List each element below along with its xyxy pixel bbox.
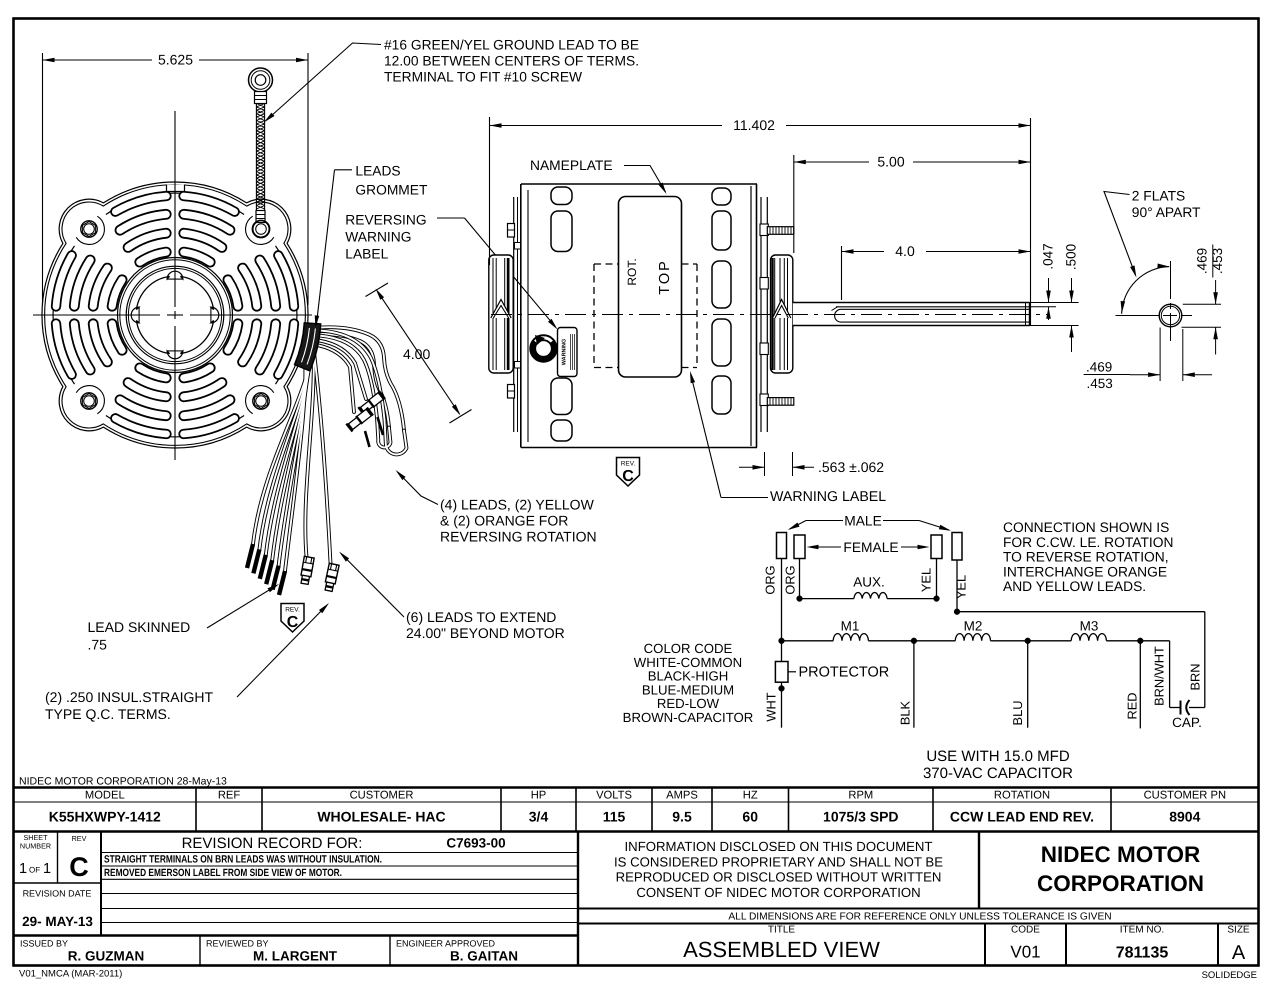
svg-text:TOP: TOP	[657, 259, 673, 295]
svg-text:INFORMATION DISCLOSED ON THIS: INFORMATION DISCLOSED ON THIS DOCUMENT	[625, 839, 933, 854]
svg-text:24.00" BEYOND MOTOR: 24.00" BEYOND MOTOR	[406, 625, 565, 641]
svg-text:WARNING: WARNING	[345, 230, 411, 245]
svg-text:ENGINEER APPROVED: ENGINEER APPROVED	[396, 939, 496, 949]
svg-text:HZ: HZ	[743, 790, 758, 802]
svg-text:REVISION RECORD FOR:: REVISION RECORD FOR:	[182, 835, 363, 852]
svg-text:REV: REV	[72, 834, 87, 843]
svg-text:CCW LEAD END REV.: CCW LEAD END REV.	[950, 809, 1094, 825]
svg-text:LEAD SKINNED: LEAD SKINNED	[88, 619, 191, 635]
svg-text:WARNING: WARNING	[562, 339, 568, 366]
svg-text:TYPE Q.C. TERMS.: TYPE Q.C. TERMS.	[45, 706, 171, 722]
svg-text:ALL DIMENSIONS ARE FOR REFEREN: ALL DIMENSIONS ARE FOR REFERENCE ONLY UN…	[728, 912, 1111, 923]
svg-text:.047: .047	[1041, 243, 1056, 269]
svg-text:REVIEWED BY: REVIEWED BY	[206, 939, 269, 949]
svg-text:.563 ±.062: .563 ±.062	[818, 459, 884, 475]
svg-text:CODE: CODE	[1011, 925, 1040, 936]
svg-text:C: C	[69, 852, 89, 882]
svg-text:R. GUZMAN: R. GUZMAN	[68, 949, 145, 964]
svg-text:M. LARGENT: M. LARGENT	[253, 949, 338, 964]
svg-text:29- MAY-13: 29- MAY-13	[22, 914, 93, 929]
svg-text:(4) LEADS, (2) YELLOW: (4) LEADS, (2) YELLOW	[440, 497, 595, 513]
svg-text:RPM: RPM	[848, 790, 873, 802]
svg-text:LEADS: LEADS	[355, 164, 400, 179]
svg-text:.75: .75	[88, 637, 108, 653]
svg-text:OF: OF	[29, 866, 40, 875]
svg-text:CAP.: CAP.	[1172, 715, 1202, 730]
svg-text:5.00: 5.00	[877, 154, 904, 170]
svg-text:ROT.: ROT.	[625, 258, 639, 285]
svg-text:11.402: 11.402	[733, 117, 775, 133]
svg-text:C: C	[622, 468, 634, 485]
svg-text:REVERSING ROTATION: REVERSING ROTATION	[440, 529, 597, 545]
svg-text:AUX.: AUX.	[853, 575, 885, 590]
svg-text:115: 115	[603, 809, 626, 825]
svg-text:.453: .453	[1087, 376, 1113, 391]
svg-text:60: 60	[742, 809, 758, 825]
svg-text:12.00 BETWEEN CENTERS OF TERMS: 12.00 BETWEEN CENTERS OF TERMS.	[384, 54, 639, 69]
svg-text:RED: RED	[1125, 692, 1140, 719]
svg-text:AMPS: AMPS	[666, 790, 698, 802]
svg-text:YEL: YEL	[954, 575, 969, 599]
svg-text:ROTATION: ROTATION	[994, 790, 1050, 802]
svg-text:.469: .469	[1086, 360, 1112, 375]
svg-text:NAMEPLATE: NAMEPLATE	[530, 158, 613, 173]
svg-text:NIDEC MOTOR CORPORATION 28-May: NIDEC MOTOR CORPORATION 28-May-13	[19, 776, 227, 788]
svg-text:USE WITH 15.0 MFD: USE WITH 15.0 MFD	[926, 748, 1070, 765]
svg-text:C: C	[287, 614, 299, 631]
svg-text:BLK: BLK	[898, 700, 913, 725]
svg-text:TITLE: TITLE	[768, 925, 796, 936]
svg-text:SIZE: SIZE	[1227, 925, 1250, 936]
svg-text:AND YELLOW LEADS.: AND YELLOW LEADS.	[1003, 579, 1146, 594]
svg-text:REV.: REV.	[285, 607, 300, 614]
svg-text:1: 1	[43, 861, 51, 877]
svg-text:ORG: ORG	[763, 565, 778, 594]
svg-text:K55HXWPY-1412: K55HXWPY-1412	[49, 809, 161, 825]
svg-text:PROTECTOR: PROTECTOR	[799, 665, 890, 681]
svg-text:.500: .500	[1064, 244, 1079, 270]
svg-text:& (2) ORANGE FOR: & (2) ORANGE FOR	[440, 513, 568, 529]
svg-text:WHT: WHT	[764, 692, 779, 721]
svg-text:ITEM NO.: ITEM NO.	[1120, 925, 1164, 936]
svg-text:FOR C.CW. LE. ROTATION: FOR C.CW. LE. ROTATION	[1003, 535, 1173, 550]
svg-text:1: 1	[19, 861, 27, 877]
svg-text:YEL: YEL	[919, 568, 934, 592]
svg-text:NUMBER: NUMBER	[20, 842, 51, 851]
svg-text:4.0: 4.0	[895, 243, 915, 259]
svg-text:.469: .469	[1195, 248, 1210, 274]
svg-text:REVERSING: REVERSING	[345, 213, 426, 228]
svg-text:BROWN-CAPACITOR: BROWN-CAPACITOR	[623, 710, 754, 725]
svg-text:A: A	[1232, 942, 1246, 964]
svg-text:CONNECTION SHOWN IS: CONNECTION SHOWN IS	[1003, 520, 1169, 535]
svg-text:370-VAC CAPACITOR: 370-VAC CAPACITOR	[923, 765, 1073, 782]
svg-text:WHITE-COMMON: WHITE-COMMON	[634, 655, 742, 670]
svg-text:B. GAITAN: B. GAITAN	[450, 949, 518, 964]
svg-text:ASSEMBLED VIEW: ASSEMBLED VIEW	[683, 937, 880, 962]
svg-text:TERMINAL TO FIT #10 SCREW: TERMINAL TO FIT #10 SCREW	[384, 70, 582, 85]
svg-text:9.5: 9.5	[672, 809, 692, 825]
svg-text:CUSTOMER: CUSTOMER	[350, 790, 414, 802]
svg-text:4.00: 4.00	[403, 346, 430, 362]
svg-text:3/4: 3/4	[529, 809, 549, 825]
svg-text:WHOLESALE- HAC: WHOLESALE- HAC	[317, 809, 445, 825]
svg-text:M3: M3	[1080, 619, 1099, 634]
svg-text:REV.: REV.	[621, 461, 636, 468]
svg-text:MALE: MALE	[844, 514, 882, 529]
svg-text:V01_NMCA (MAR-2011): V01_NMCA (MAR-2011)	[19, 969, 122, 980]
svg-text:M2: M2	[964, 619, 983, 634]
svg-text:MODEL: MODEL	[85, 790, 125, 802]
svg-text:2 FLATS: 2 FLATS	[1132, 189, 1185, 204]
svg-text:VOLTS: VOLTS	[596, 790, 632, 802]
svg-text:CONSENT OF NIDEC MOTOR CORPORA: CONSENT OF NIDEC MOTOR CORPORATION	[636, 885, 920, 900]
svg-text:REPRODUCED OR DISCLOSED WITHOU: REPRODUCED OR DISCLOSED WITHOUT WRITTEN	[616, 870, 942, 885]
svg-text:1075/3 SPD: 1075/3 SPD	[823, 809, 899, 825]
svg-text:INTERCHANGE ORANGE: INTERCHANGE ORANGE	[1003, 564, 1167, 579]
svg-text:(6) LEADS TO EXTEND: (6) LEADS TO EXTEND	[406, 609, 556, 625]
svg-text:REMOVED EMERSON LABEL FROM SID: REMOVED EMERSON LABEL FROM SIDE VIEW OF …	[104, 867, 342, 879]
svg-text:TO REVERSE ROTATION,: TO REVERSE ROTATION,	[1003, 550, 1169, 565]
svg-text:90° APART: 90° APART	[1132, 205, 1201, 220]
svg-text:5.625: 5.625	[158, 52, 193, 68]
svg-text:8904: 8904	[1169, 809, 1200, 825]
svg-text:COLOR CODE: COLOR CODE	[644, 641, 733, 656]
svg-text:ORG: ORG	[783, 565, 798, 594]
svg-text:HP: HP	[531, 790, 547, 802]
svg-text:STRAIGHT TERMINALS ON BRN LEAD: STRAIGHT TERMINALS ON BRN LEADS WAS WITH…	[104, 854, 382, 866]
svg-text:BLUE-MEDIUM: BLUE-MEDIUM	[642, 682, 734, 697]
svg-text:BLU: BLU	[1010, 701, 1025, 726]
svg-text:BLACK-HIGH: BLACK-HIGH	[648, 669, 729, 684]
svg-text:BRN: BRN	[1188, 663, 1203, 690]
svg-text:V01: V01	[1010, 943, 1040, 962]
svg-text:SOLIDEDGE: SOLIDEDGE	[1202, 970, 1257, 981]
svg-text:GROMMET: GROMMET	[355, 183, 428, 198]
svg-text:IS CONSIDERED PROPRIETARY AND: IS CONSIDERED PROPRIETARY AND SHALL NOT …	[614, 854, 943, 869]
svg-text:REVISION DATE: REVISION DATE	[23, 889, 92, 899]
svg-text:.453: .453	[1210, 248, 1225, 274]
svg-text:C7693-00: C7693-00	[446, 836, 505, 851]
svg-text:#16 GREEN/YEL GROUND LEAD TO B: #16 GREEN/YEL GROUND LEAD TO BE	[384, 38, 639, 53]
svg-text:RED-LOW: RED-LOW	[657, 696, 720, 711]
svg-text:NIDEC MOTOR: NIDEC MOTOR	[1041, 842, 1201, 867]
svg-text:LABEL: LABEL	[345, 247, 388, 262]
svg-text:M1: M1	[841, 619, 860, 634]
svg-text:CUSTOMER PN: CUSTOMER PN	[1144, 790, 1226, 802]
svg-text:781135: 781135	[1116, 945, 1169, 962]
svg-text:REF: REF	[218, 790, 241, 802]
svg-text:WARNING LABEL: WARNING LABEL	[770, 489, 886, 505]
svg-text:ISSUED BY: ISSUED BY	[20, 939, 68, 949]
svg-text:(2) .250 INSUL.STRAIGHT: (2) .250 INSUL.STRAIGHT	[45, 689, 213, 705]
svg-text:BRN/WHT: BRN/WHT	[1152, 646, 1167, 706]
svg-text:FEMALE: FEMALE	[843, 540, 898, 555]
svg-text:CORPORATION: CORPORATION	[1037, 871, 1204, 896]
